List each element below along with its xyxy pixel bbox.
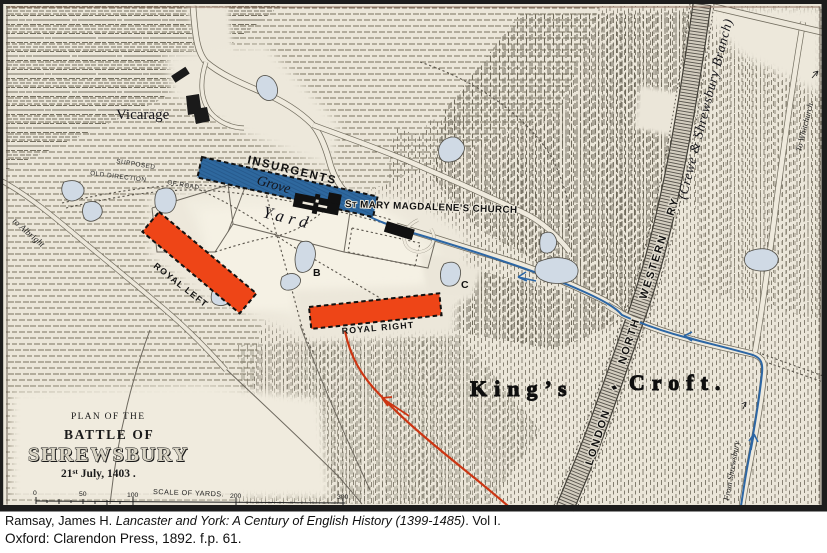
svg-text:B: B [313, 267, 321, 279]
svg-text:300: 300 [337, 494, 349, 501]
svg-text:C: C [461, 279, 469, 291]
svg-text:200: 200 [230, 493, 242, 500]
svg-text:100: 100 [127, 492, 139, 499]
svg-text:Vicarage: Vicarage [116, 107, 170, 123]
svg-text:PLAN OF THE: PLAN OF THE [71, 412, 145, 422]
svg-text:BATTLE OF: BATTLE OF [64, 427, 154, 442]
svg-text:21st July, 1403 .: 21st July, 1403 . [61, 467, 136, 480]
svg-text:50: 50 [79, 491, 87, 498]
svg-text:0: 0 [33, 490, 37, 497]
svg-text:Oxford: Clarendon Press, 1892.: Oxford: Clarendon Press, 1892. f.p. 61. [5, 531, 242, 546]
svg-text:King’s: King’s [470, 376, 574, 401]
svg-text:Ramsay, James H. Lancaster and: Ramsay, James H. Lancaster and York: A C… [5, 513, 501, 528]
svg-text:Croft.: Croft. [629, 370, 727, 395]
svg-text:SHREWSBURY: SHREWSBURY [28, 444, 189, 466]
